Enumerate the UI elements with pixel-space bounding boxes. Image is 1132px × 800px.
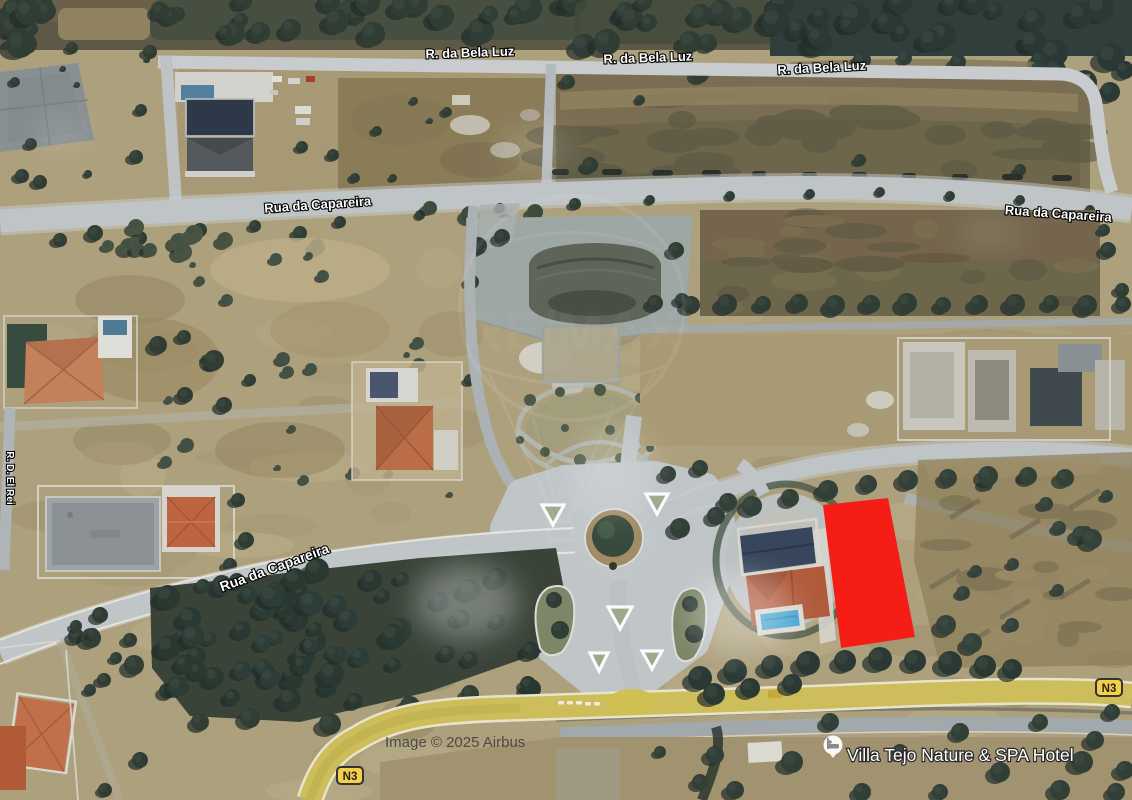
svg-text:N3: N3 (343, 771, 358, 783)
svg-text:R. da Bela Luz: R. da Bela Luz (425, 43, 515, 61)
svg-text:Image © 2025 Airbus: Image © 2025 Airbus (385, 734, 525, 751)
svg-text:R. D. El Rei: R. D. El Rei (4, 451, 15, 505)
svg-text:N3: N3 (1102, 683, 1117, 695)
svg-text:R. da Bela Luz: R. da Bela Luz (603, 48, 693, 66)
svg-text:Villa Tejo Nature & SPA Hotel: Villa Tejo Nature & SPA Hotel (847, 745, 1074, 765)
